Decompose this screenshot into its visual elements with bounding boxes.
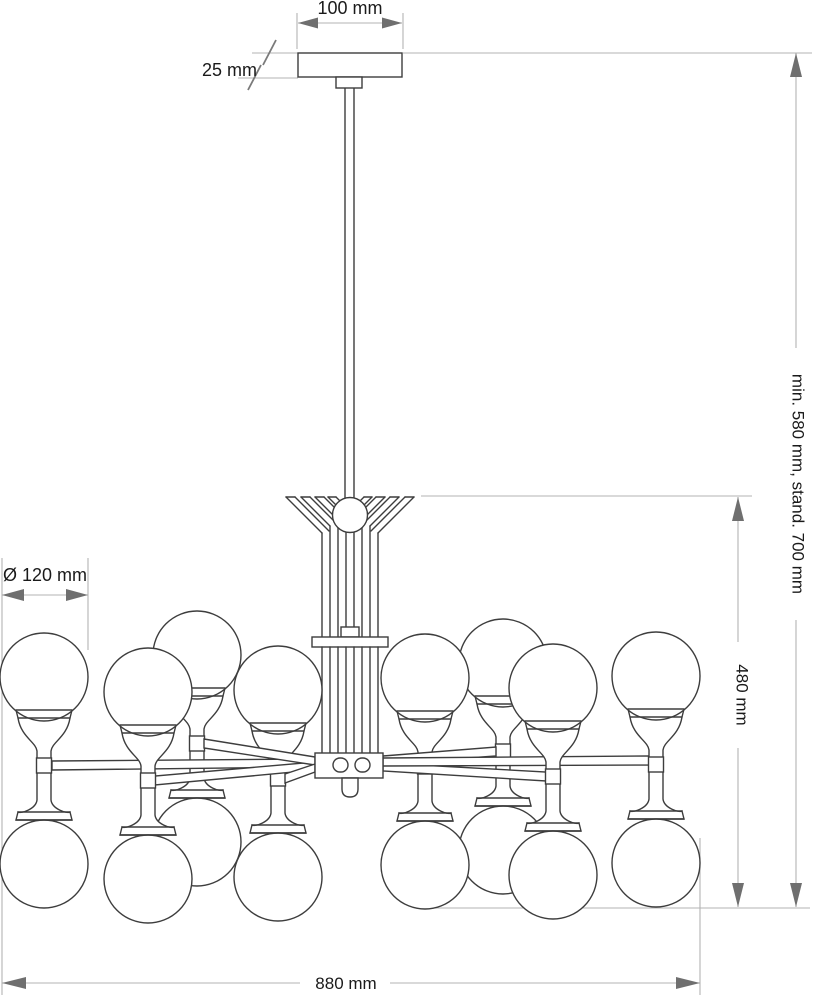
hub-block	[315, 753, 383, 778]
column-rods	[322, 647, 378, 753]
chandelier-drawing	[0, 53, 700, 923]
central-hub	[315, 753, 383, 797]
chandelier-technical-drawing: 100 mm 25 mm Ø 120 mm 880 mm 480 mm min.…	[0, 0, 816, 1000]
globe-cluster-7	[509, 644, 597, 919]
total-width-label: 880 mm	[315, 974, 376, 993]
globe-cluster-2	[104, 648, 192, 923]
globe-cluster-1	[0, 633, 88, 908]
hub-slot-left	[333, 758, 348, 772]
column-collar-box	[341, 627, 359, 637]
body-height-label: 480 mm	[733, 664, 752, 725]
spider-fan-hub	[286, 497, 414, 637]
globe-diameter-label: Ø 120 mm	[3, 565, 87, 585]
hanging-height-label: min. 580 mm, stand. 700 mm	[789, 374, 808, 594]
canopy-height-label: 25 mm	[202, 60, 257, 80]
column-collar	[312, 637, 388, 647]
suspension-rod	[345, 88, 354, 500]
canopy-width-label: 100 mm	[317, 0, 382, 18]
hub-slot-right	[355, 758, 370, 772]
hub-ball	[333, 498, 368, 533]
arm	[383, 756, 650, 766]
globe-cluster-8	[612, 632, 700, 907]
hub-finial	[342, 778, 358, 797]
globe-cluster-4	[234, 646, 322, 921]
drawing-page: 100 mm 25 mm Ø 120 mm 880 mm 480 mm min.…	[0, 0, 816, 1000]
ceiling-canopy	[298, 53, 402, 77]
canopy-stem-connector	[336, 77, 362, 88]
